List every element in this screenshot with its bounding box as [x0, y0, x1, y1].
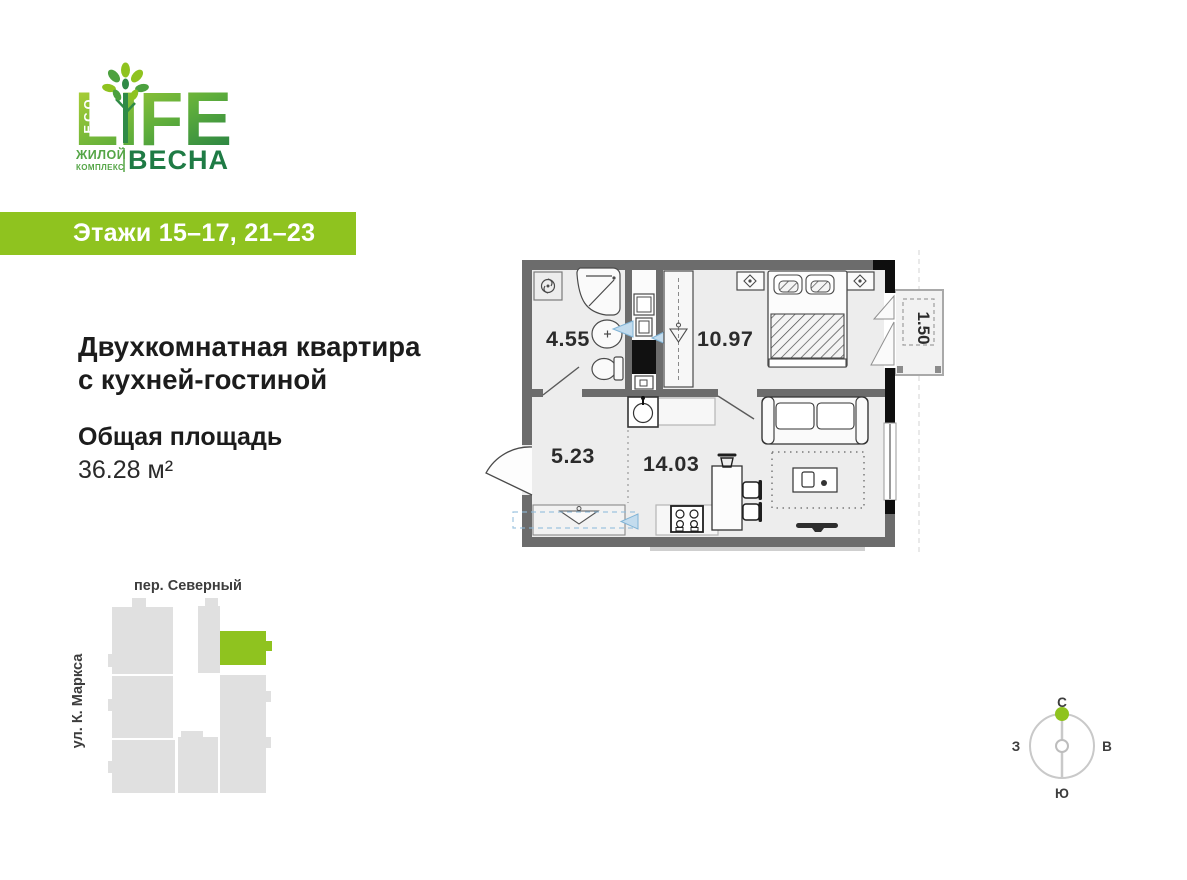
dining-table [712, 466, 742, 530]
compass-south-label: Ю [1055, 786, 1069, 801]
hallway-area-label: 5.23 [551, 444, 595, 468]
toilet [592, 359, 616, 380]
floors-banner: Этажи 15–17, 21–23 [0, 212, 356, 255]
floors-banner-label: Этажи 15–17, 21–23 [0, 212, 356, 255]
flyer-page: LIFE ECO ЖИЛОЙ КОМПЛЕКС ВЕСНА Этажи 15–1… [0, 0, 1187, 880]
tv [796, 523, 838, 528]
wall-shadow [650, 547, 865, 551]
coffee-table [793, 468, 837, 492]
chair-right-2 [743, 504, 759, 520]
street-label-top: пер. Северный [134, 578, 242, 594]
bathroom-area-label: 4.55 [546, 327, 590, 351]
logo-complex-line1: ЖИЛОЙ [75, 147, 126, 162]
compass-north-label: С [1057, 695, 1067, 710]
utility-column [632, 270, 656, 390]
eco-life-vesna-logo: LIFE ECO ЖИЛОЙ КОМПЛЕКС ВЕСНА [73, 55, 241, 179]
apartment-title-line1: Двухкомнатная квартира [78, 330, 420, 363]
logo-complex-line2: КОМПЛЕКС [76, 163, 124, 172]
bedroom-area-label: 10.97 [697, 327, 753, 351]
street-label-left: ул. К. Маркса [70, 653, 86, 749]
chair-right-1 [743, 482, 759, 498]
apartment-title: Двухкомнатная квартира с кухней-гостиной [78, 330, 420, 396]
compass: С Ю З В [1005, 688, 1120, 806]
logo-brand-text: ВЕСНА [128, 145, 229, 175]
balcony-area-label: 1.50 [914, 311, 933, 344]
apartment-title-line2: с кухней-гостиной [78, 363, 420, 396]
compass-east-label: В [1102, 739, 1112, 754]
highlighted-building [220, 631, 272, 665]
counter-top [658, 398, 715, 425]
balcony: 1.50 [895, 290, 943, 375]
logo-eco-text: ECO [81, 96, 96, 133]
kitchen-area-label: 14.03 [643, 452, 699, 476]
shaft [632, 340, 656, 374]
mattress [771, 314, 844, 358]
compass-hub [1056, 740, 1068, 752]
buildings [108, 598, 271, 793]
total-area-label: Общая площадь [78, 423, 282, 451]
site-map: пер. Северный ул. К. Маркса [55, 572, 290, 807]
total-area-value: 36.28 м² [78, 456, 282, 485]
floor-plan: 1.50 [475, 248, 960, 554]
total-area-block: Общая площадь 36.28 м² [78, 423, 282, 485]
entrance-door [486, 447, 532, 495]
compass-west-label: З [1012, 739, 1020, 754]
